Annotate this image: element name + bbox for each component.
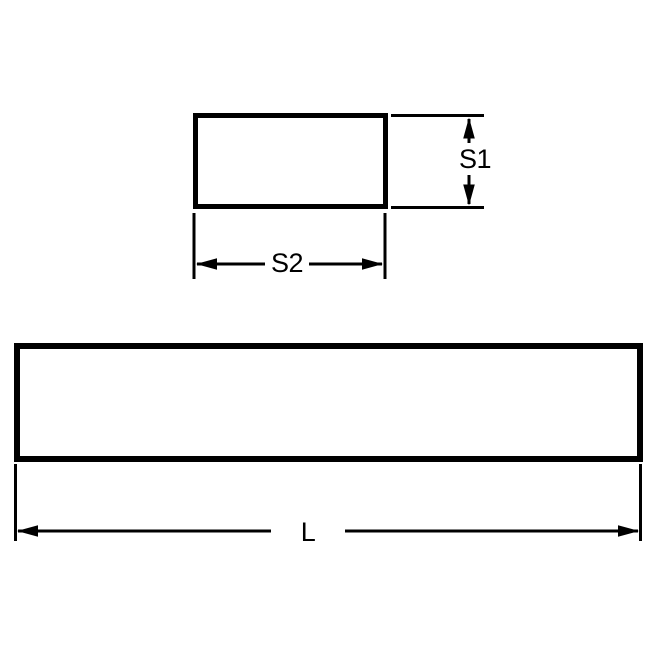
length-label: L	[301, 517, 316, 547]
cross-section-rect	[196, 116, 386, 207]
s2-label: S2	[271, 248, 303, 278]
cross-section-view	[196, 116, 386, 207]
canvas-background	[0, 0, 670, 670]
bar-rect	[17, 346, 640, 459]
dimension-drawing: S1 S2 L	[0, 0, 670, 670]
side-view	[17, 346, 640, 459]
s1-label: S1	[459, 144, 491, 174]
page: { "diagram": { "colors": { "line": "#000…	[0, 0, 670, 670]
